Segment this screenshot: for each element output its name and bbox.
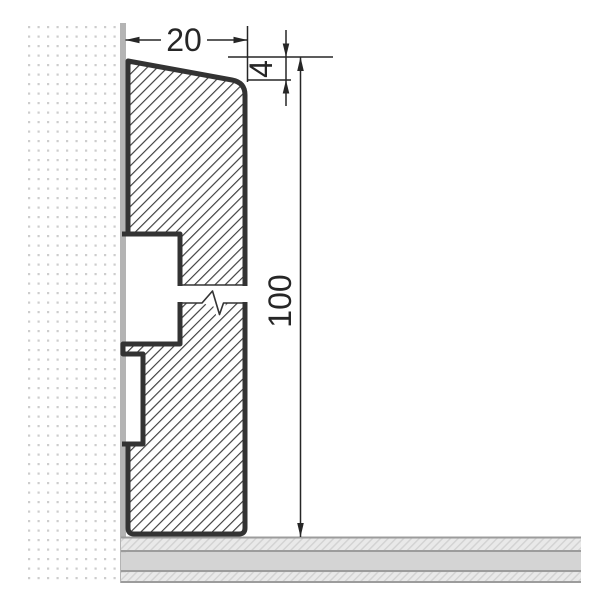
floor-section [121, 537, 581, 584]
floor-divider-line-2 [121, 570, 581, 572]
dim-width-label: 20 [166, 22, 202, 58]
floor-divider-line-1 [121, 550, 581, 552]
technical-drawing-canvas: 20 4 100 [0, 0, 604, 604]
floor-bottom-line [121, 581, 581, 583]
wall-section [25, 23, 126, 583]
floor-screed-lower [121, 572, 581, 581]
floor-top-line [121, 537, 581, 539]
wall-edge-band [120, 23, 126, 583]
wall-stipple-area [25, 23, 120, 583]
floor-screed-upper [121, 539, 581, 551]
floor-solid-layer [121, 552, 581, 570]
dim-height-label: 100 [262, 274, 298, 327]
dim-chamfer-label: 4 [243, 60, 279, 78]
